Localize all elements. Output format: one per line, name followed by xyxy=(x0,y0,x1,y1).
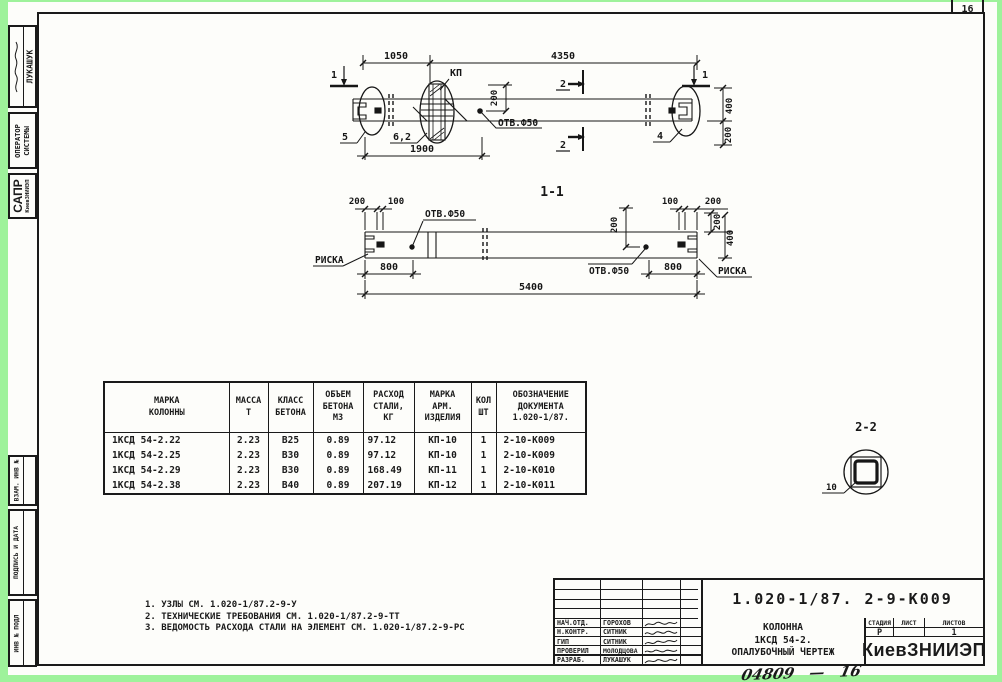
sidebar-stamp-operator: ОПЕРАТОР СИСТЕМЫ xyxy=(8,112,37,169)
dim-800-right: 800 xyxy=(664,262,682,273)
dim-400-right: 400 xyxy=(725,98,735,114)
vzam-inv-label: ВЗАМ. ИНВ № xyxy=(13,460,20,502)
dim-200-top-right: 200 xyxy=(705,197,721,207)
elevation-view: 1050 4350 1 1 xyxy=(280,40,740,180)
table-header-row: МАРКА КОЛОННЫ МАССА Т КЛАСС БЕТОНА ОБЪЕМ… xyxy=(104,382,586,433)
svg-text:6,2: 6,2 xyxy=(393,132,411,143)
sheet-label: ЛИСТ xyxy=(894,620,924,627)
section-marker-1-right: 1 xyxy=(682,66,710,86)
title-block: НАЧ.ОТД. ГОРОХОВ Н.КОНТР. СИТНИК ГИП СИТ… xyxy=(553,578,985,666)
kp-label-group: КП xyxy=(440,68,462,90)
handwritten-number-1: 04809 xyxy=(740,664,796,682)
stage-value: Р xyxy=(866,628,893,638)
header-massa: МАССА Т xyxy=(229,382,268,433)
kp-label: КП xyxy=(450,68,462,79)
drawing-title-line1: КОЛОННА xyxy=(763,622,803,635)
hole-label-right: ОТВ.Ф50 xyxy=(589,266,629,277)
dim-1900: 1900 xyxy=(410,144,434,155)
handwritten-number-2: 16 xyxy=(838,662,863,681)
operator-label-line2: СИСТЕМЫ xyxy=(23,124,32,158)
sidebar-author-name-cell: ЛУКАШУК xyxy=(24,27,35,106)
specification-table: МАРКА КОЛОННЫ МАССА Т КЛАСС БЕТОНА ОБЪЕМ… xyxy=(103,381,587,495)
hole-callout-right: ОТВ.Ф50 xyxy=(588,249,645,277)
sheets-label: ЛИСТОВ xyxy=(925,620,983,627)
sapr-label: САПР xyxy=(13,179,23,213)
stage-label: СТАДИЯ xyxy=(866,620,893,627)
cell-oboznachenie: 2-10-К010 xyxy=(496,463,586,478)
organization-name: КиевЗНИИЭП xyxy=(865,637,983,664)
handwritten-inventory-number: 04809 — 16 xyxy=(740,662,863,682)
section-2-label-top: 2 xyxy=(560,79,566,90)
dim-800-left-group: 800 xyxy=(357,260,421,279)
cell-obyem: 0.89 xyxy=(313,478,363,494)
header-obyem: ОБЪЕМ БЕТОНА М3 xyxy=(313,382,363,433)
detail-dim-10: 10 xyxy=(826,483,837,493)
section-view-1-1: 1-1 200 100 100 200 xyxy=(280,180,760,310)
section-marker-1-left: 1 xyxy=(330,66,358,86)
cell-kol: 1 xyxy=(471,433,496,449)
staff-role: ПРОВЕРИЛ xyxy=(557,647,599,655)
header-rashod: РАСХОД СТАЛИ, КГ xyxy=(363,382,414,433)
sidebar-stamp-sapr: САПР КиевЗНИИЭП xyxy=(8,173,37,219)
staff-name: МОЛОДЦОВА xyxy=(603,647,641,655)
cell-rashod: 207.19 xyxy=(363,478,414,494)
cell-kol: 1 xyxy=(471,463,496,478)
dim-400-right-sec: 400 xyxy=(726,230,736,246)
drawing-title: КОЛОННА 1КСД 54-2. ОПАЛУБОЧНЫЙ ЧЕРТЕЖ xyxy=(702,618,864,664)
handwritten-dash: — xyxy=(808,663,827,682)
dim-1900-group: 1900 xyxy=(357,137,490,160)
section-1-1-title: 1-1 xyxy=(540,185,564,200)
cell-marka-arm: КП-10 xyxy=(414,448,471,463)
cell-obyem: 0.89 xyxy=(313,463,363,478)
signature-icon xyxy=(644,629,678,637)
hole-label-left: ОТВ.Ф50 xyxy=(425,209,465,220)
dim-100-top-right: 100 xyxy=(662,197,678,207)
table-row: 1КСД 54-2.22 2.23 В25 0.89 97.12 КП-10 1… xyxy=(104,433,586,449)
hole-callout-left: ОТВ.Ф50 xyxy=(410,209,476,249)
cell-massa: 2.23 xyxy=(229,478,268,494)
sheets-value: 1 xyxy=(925,628,983,638)
cell-marka: 1КСД 54-2.22 xyxy=(104,433,229,449)
hole-label: ОТВ.Ф50 xyxy=(498,118,538,129)
table-row: 1КСД 54-2.25 2.23 В30 0.89 97.12 КП-10 1… xyxy=(104,448,586,463)
header-oboznachenie: ОБОЗНАЧЕНИЕ ДОКУМЕНТА 1.020-1/87. xyxy=(496,382,586,433)
section-marker-2-top: 2 xyxy=(556,70,585,94)
dim-1050: 1050 xyxy=(384,51,408,62)
section-marker-2-bottom: 2 xyxy=(556,127,585,151)
dim-4350: 4350 xyxy=(551,51,575,62)
signature-icon xyxy=(644,620,678,628)
operator-label-line1: ОПЕРАТОР xyxy=(14,124,23,158)
cell-rashod: 97.12 xyxy=(363,433,414,449)
cell-marka: 1КСД 54-2.25 xyxy=(104,448,229,463)
header-marka: МАРКА КОЛОННЫ xyxy=(104,382,229,433)
dim-5400-group: 5400 xyxy=(357,280,705,299)
cell-kol: 1 xyxy=(471,478,496,494)
sidebar-author-signature-cell xyxy=(10,27,24,106)
sidebar-stamp-vzam-inv: ВЗАМ. ИНВ № xyxy=(8,455,37,506)
signature-icon xyxy=(12,37,21,97)
cell-oboznachenie: 2-10-К009 xyxy=(496,433,586,449)
sapr-sub-label: КиевЗНИИЭП xyxy=(23,179,33,213)
header-kol: КОЛ ШТ xyxy=(471,382,496,433)
corner-number-text: 16 xyxy=(961,4,973,12)
cell-klass: В40 xyxy=(268,478,313,494)
dim-200-top-left: 200 xyxy=(349,197,365,207)
signature-icon xyxy=(644,657,678,665)
dim-100-top-left: 100 xyxy=(388,197,404,207)
cell-oboznachenie: 2-10-К011 xyxy=(496,478,586,494)
cell-klass: В30 xyxy=(268,463,313,478)
staff-name: ЛУКАШУК xyxy=(603,656,641,664)
dim-200-right: 200 xyxy=(724,127,734,143)
document-number: 1.020-1/87. 2-9-К009 xyxy=(702,580,983,618)
podpis-data-label: ПОДПИСЬ И ДАТА xyxy=(13,526,20,579)
dim-200-mid: 200 xyxy=(490,90,500,106)
staff-name: ГОРОХОВ xyxy=(603,619,641,627)
drawing-title-line3: ОПАЛУБОЧНЫЙ ЧЕРТЕЖ xyxy=(732,647,835,660)
dim-200-mid-label: 200 xyxy=(610,217,620,233)
right-side-dimensions: 400 200 xyxy=(707,85,735,148)
section-1-label-left: 1 xyxy=(331,70,337,81)
staff-name: СИТНИК xyxy=(603,638,641,646)
cell-marka: 1КСД 54-2.38 xyxy=(104,478,229,494)
cell-oboznachenie: 2-10-К009 xyxy=(496,448,586,463)
section-1-label-right: 1 xyxy=(702,70,708,81)
cell-marka-arm: КП-10 xyxy=(414,433,471,449)
cell-marka: 1КСД 54-2.29 xyxy=(104,463,229,478)
riska-left-label: РИСКА xyxy=(315,255,344,266)
cell-kol: 1 xyxy=(471,448,496,463)
staff-role: НАЧ.ОТД. xyxy=(557,619,599,627)
note-line-1: 1. УЗЛЫ СМ. 1.020-1/87.2-9-У xyxy=(145,600,465,612)
sidebar-author-name: ЛУКАШУК xyxy=(25,50,34,84)
header-marka-arm: МАРКА АРМ. ИЗДЕЛИЯ xyxy=(414,382,471,433)
section-right-dims: 200 400 xyxy=(704,210,736,261)
hole-callout-mid: ОТВ.Ф50 xyxy=(478,109,542,129)
section-top-left-dims: 200 100 xyxy=(349,197,404,230)
elevation-top-dimensions: 1050 4350 xyxy=(360,51,700,84)
svg-text:4: 4 xyxy=(657,131,663,142)
sidebar-stamp-author: ЛУКАШУК xyxy=(8,25,37,108)
notes: 1. УЗЛЫ СМ. 1.020-1/87.2-9-У 2. ТЕХНИЧЕС… xyxy=(145,600,465,635)
dim-800-right-group: 800 xyxy=(641,260,705,279)
section-2-label-bottom: 2 xyxy=(560,140,566,151)
console-kp-detail xyxy=(413,84,467,140)
note-line-3: 3. ВЕДОМОСТЬ РАСХОДА СТАЛИ НА ЭЛЕМЕНТ СМ… xyxy=(145,623,465,635)
staff-name: СИТНИК xyxy=(603,628,641,636)
signature-icon xyxy=(644,638,678,646)
detail-view-2-2: 2-2 10 xyxy=(820,415,930,505)
cell-massa: 2.23 xyxy=(229,448,268,463)
cell-rashod: 97.12 xyxy=(363,448,414,463)
inv-podl-label: ИНВ № ПОДЛ xyxy=(13,614,20,652)
header-klass: КЛАСС БЕТОНА xyxy=(268,382,313,433)
staff-role: Н.КОНТР. xyxy=(557,628,599,636)
svg-text:5: 5 xyxy=(342,132,348,143)
cell-obyem: 0.89 xyxy=(313,448,363,463)
cell-marka-arm: КП-11 xyxy=(414,463,471,478)
dim-200-right-sec: 200 xyxy=(713,214,723,230)
riska-right-label: РИСКА xyxy=(718,266,747,277)
dim-200-mid-group: 200 xyxy=(486,82,512,114)
signature-icon xyxy=(644,647,678,655)
note-line-2: 2. ТЕХНИЧЕСКИЕ ТРЕБОВАНИЯ СМ. 1.020-1/87… xyxy=(145,612,465,624)
staff-role: ГИП xyxy=(557,638,599,646)
detail-label-6-2: 6,2 xyxy=(390,132,427,143)
riska-left-group: РИСКА xyxy=(313,254,368,266)
dim-800-left: 800 xyxy=(380,262,398,273)
cell-obyem: 0.89 xyxy=(313,433,363,449)
drawing-sheet: 16 ЛУКАШУК ОПЕРАТОР СИСТЕМЫ САПР КиевЗНИ… xyxy=(0,0,1002,682)
cell-klass: В25 xyxy=(268,433,313,449)
table-row: 1КСД 54-2.29 2.23 В30 0.89 168.49 КП-11 … xyxy=(104,463,586,478)
cell-massa: 2.23 xyxy=(229,433,268,449)
sheet-corner-number: 16 xyxy=(951,0,984,12)
drawing-title-line2: 1КСД 54-2. xyxy=(754,635,811,648)
detail-label-5: 5 xyxy=(340,132,365,143)
detail-2-2-title: 2-2 xyxy=(855,420,877,434)
cell-massa: 2.23 xyxy=(229,463,268,478)
sidebar-stamp-podpis-data: ПОДПИСЬ И ДАТА xyxy=(8,509,37,596)
table-row: 1КСД 54-2.38 2.23 В40 0.89 207.19 КП-12 … xyxy=(104,478,586,494)
staff-role: РАЗРАБ. xyxy=(557,656,599,664)
dim-5400: 5400 xyxy=(519,282,543,293)
cell-marka-arm: КП-12 xyxy=(414,478,471,494)
dim-200-mid-section: 200 xyxy=(610,205,648,250)
riska-right-group: РИСКА xyxy=(699,259,752,277)
cell-rashod: 168.49 xyxy=(363,463,414,478)
sidebar-stamp-inv-podl: ИНВ № ПОДЛ xyxy=(8,599,37,667)
cell-klass: В30 xyxy=(268,448,313,463)
